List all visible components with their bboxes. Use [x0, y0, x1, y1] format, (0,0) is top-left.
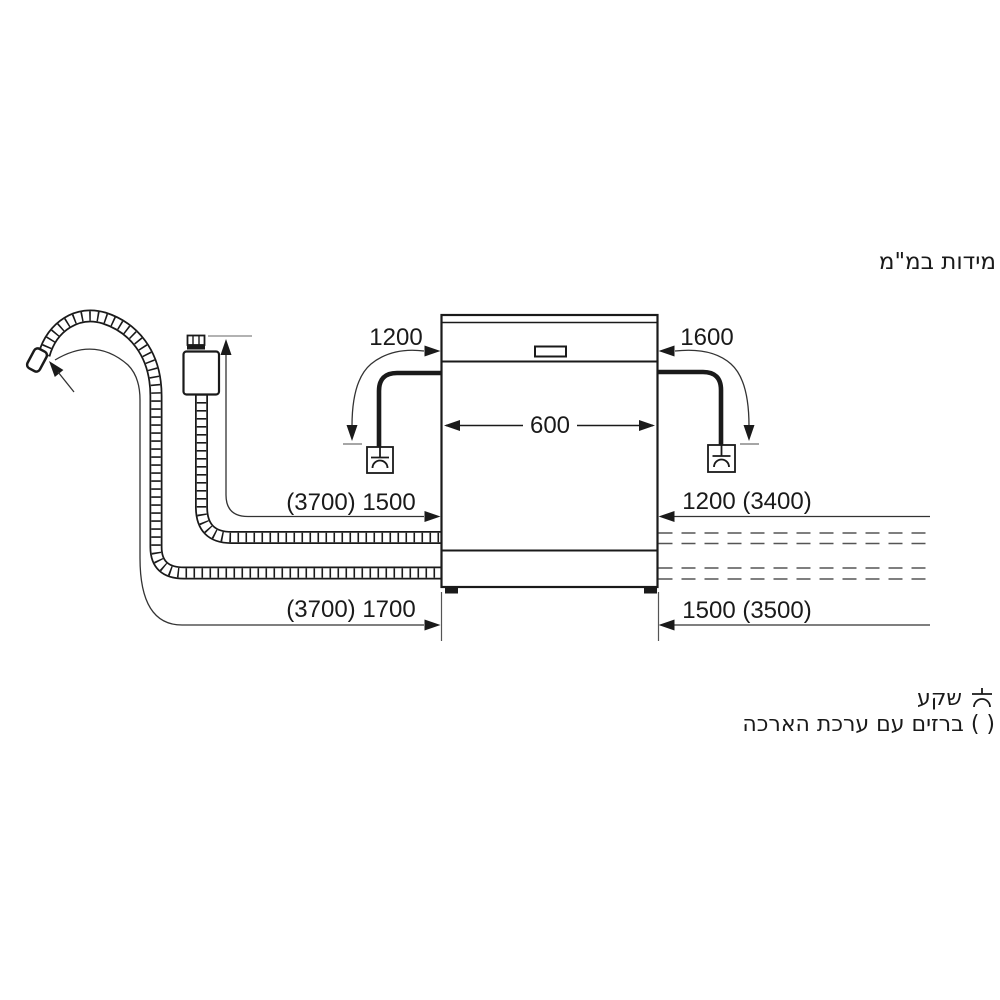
legend: שקע ( ) ברזים עם ערכת הארכה [742, 686, 995, 738]
dimension-left-cord: 1200 [343, 324, 441, 444]
right-foot [644, 588, 657, 594]
right-side-hoses-dashed [659, 533, 931, 579]
dim-label-right-drain: 1500 (3500) [682, 597, 811, 624]
power-cord-right [658, 372, 721, 445]
installation-diagram-canvas: 600 1200 [0, 0, 1000, 1000]
dimension-right-drain: 1500 (3500) [659, 592, 931, 641]
power-cord-left [379, 373, 441, 447]
door-handle [535, 347, 566, 357]
dimension-right-supply: 1200 (3400) [659, 488, 931, 522]
dimension-left-supply: (3700) 1500 [208, 336, 441, 522]
dim-label-left-drain: (3700) 1700 [286, 596, 415, 623]
legend-paren-row: ( ) ברזים עם ערכת הארכה [742, 712, 995, 738]
drain-hose-pointer-arrow [49, 361, 74, 392]
power-socket-right [708, 445, 735, 472]
dim-label-right-supply: 1200 (3400) [682, 488, 811, 515]
power-socket-left [367, 447, 393, 473]
dimension-right-cord: 1600 [659, 324, 760, 444]
left-foot [445, 588, 458, 594]
dim-label-cabinet-width: 600 [530, 412, 570, 439]
diagram: 600 1200 [0, 0, 1000, 1000]
legend-paren-label: ברזים עם ערכת הארכה [742, 712, 963, 738]
dim-label-left-supply: (3700) 1500 [286, 489, 415, 516]
drain-hose-end-cap [26, 347, 49, 373]
legend-socket-label: שקע [917, 686, 962, 712]
legend-socket-row: שקע [742, 686, 995, 712]
dim-label-right-cord: 1600 [680, 324, 733, 351]
water-tap-connector [184, 336, 220, 395]
legend-paren-symbol: ( ) [971, 712, 995, 738]
page-title: מידות במ"מ [879, 249, 996, 275]
dim-label-left-cord: 1200 [369, 324, 422, 351]
dishwasher-front [442, 315, 658, 594]
socket-icon [969, 686, 995, 712]
